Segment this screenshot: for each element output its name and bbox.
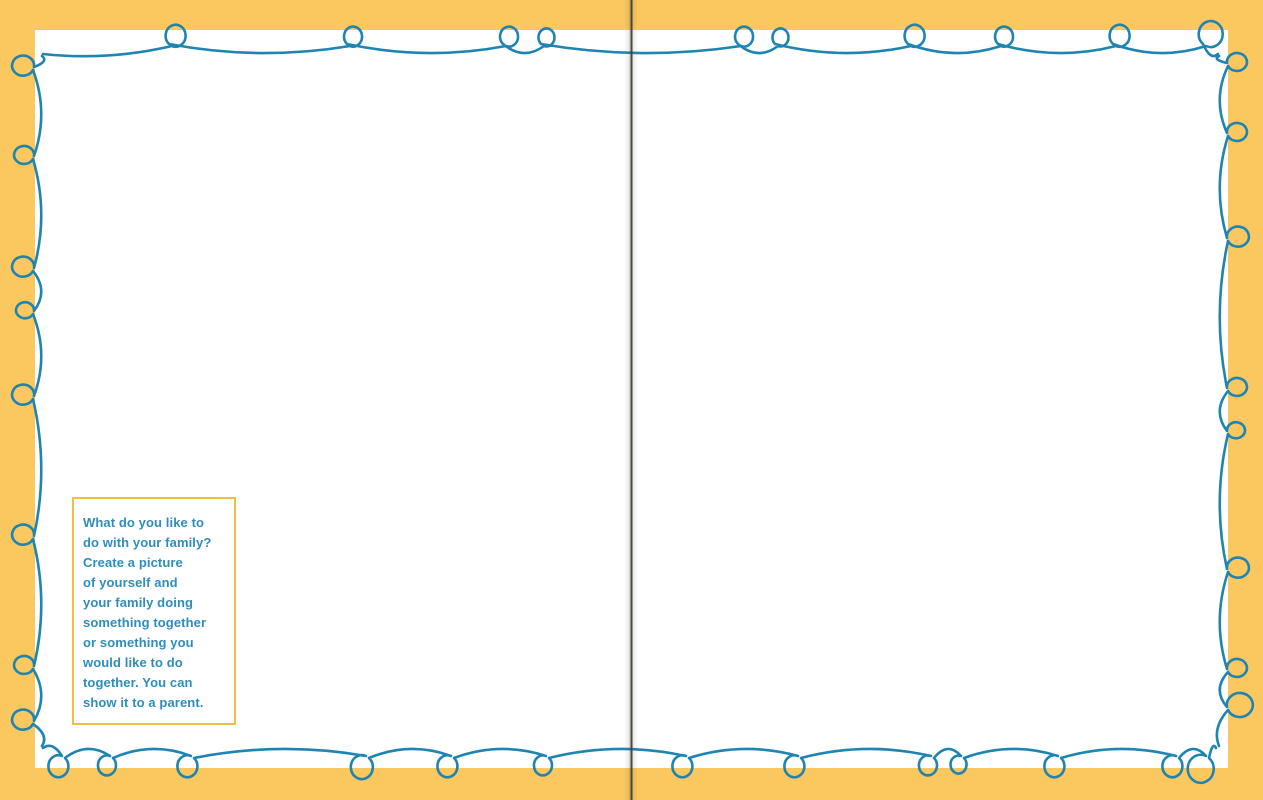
prompt-line: your family doing <box>83 593 230 613</box>
prompt-line: of yourself and <box>83 573 230 593</box>
book-spread: { "prompt_box": { "lines": [ "What do yo… <box>0 0 1263 800</box>
prompt-line: What do you like to <box>83 513 230 533</box>
prompt-line: or something you <box>83 633 230 653</box>
prompt-line: something together <box>83 613 230 633</box>
prompt-line: Create a picture <box>83 553 230 573</box>
prompt-text: What do you like to do with your family?… <box>83 513 230 713</box>
prompt-line: show it to a parent. <box>83 693 230 713</box>
prompt-line: would like to do <box>83 653 230 673</box>
page-gutter <box>624 0 638 800</box>
prompt-box: What do you like to do with your family?… <box>72 497 236 725</box>
prompt-line: do with your family? <box>83 533 230 553</box>
prompt-line: together. You can <box>83 673 230 693</box>
